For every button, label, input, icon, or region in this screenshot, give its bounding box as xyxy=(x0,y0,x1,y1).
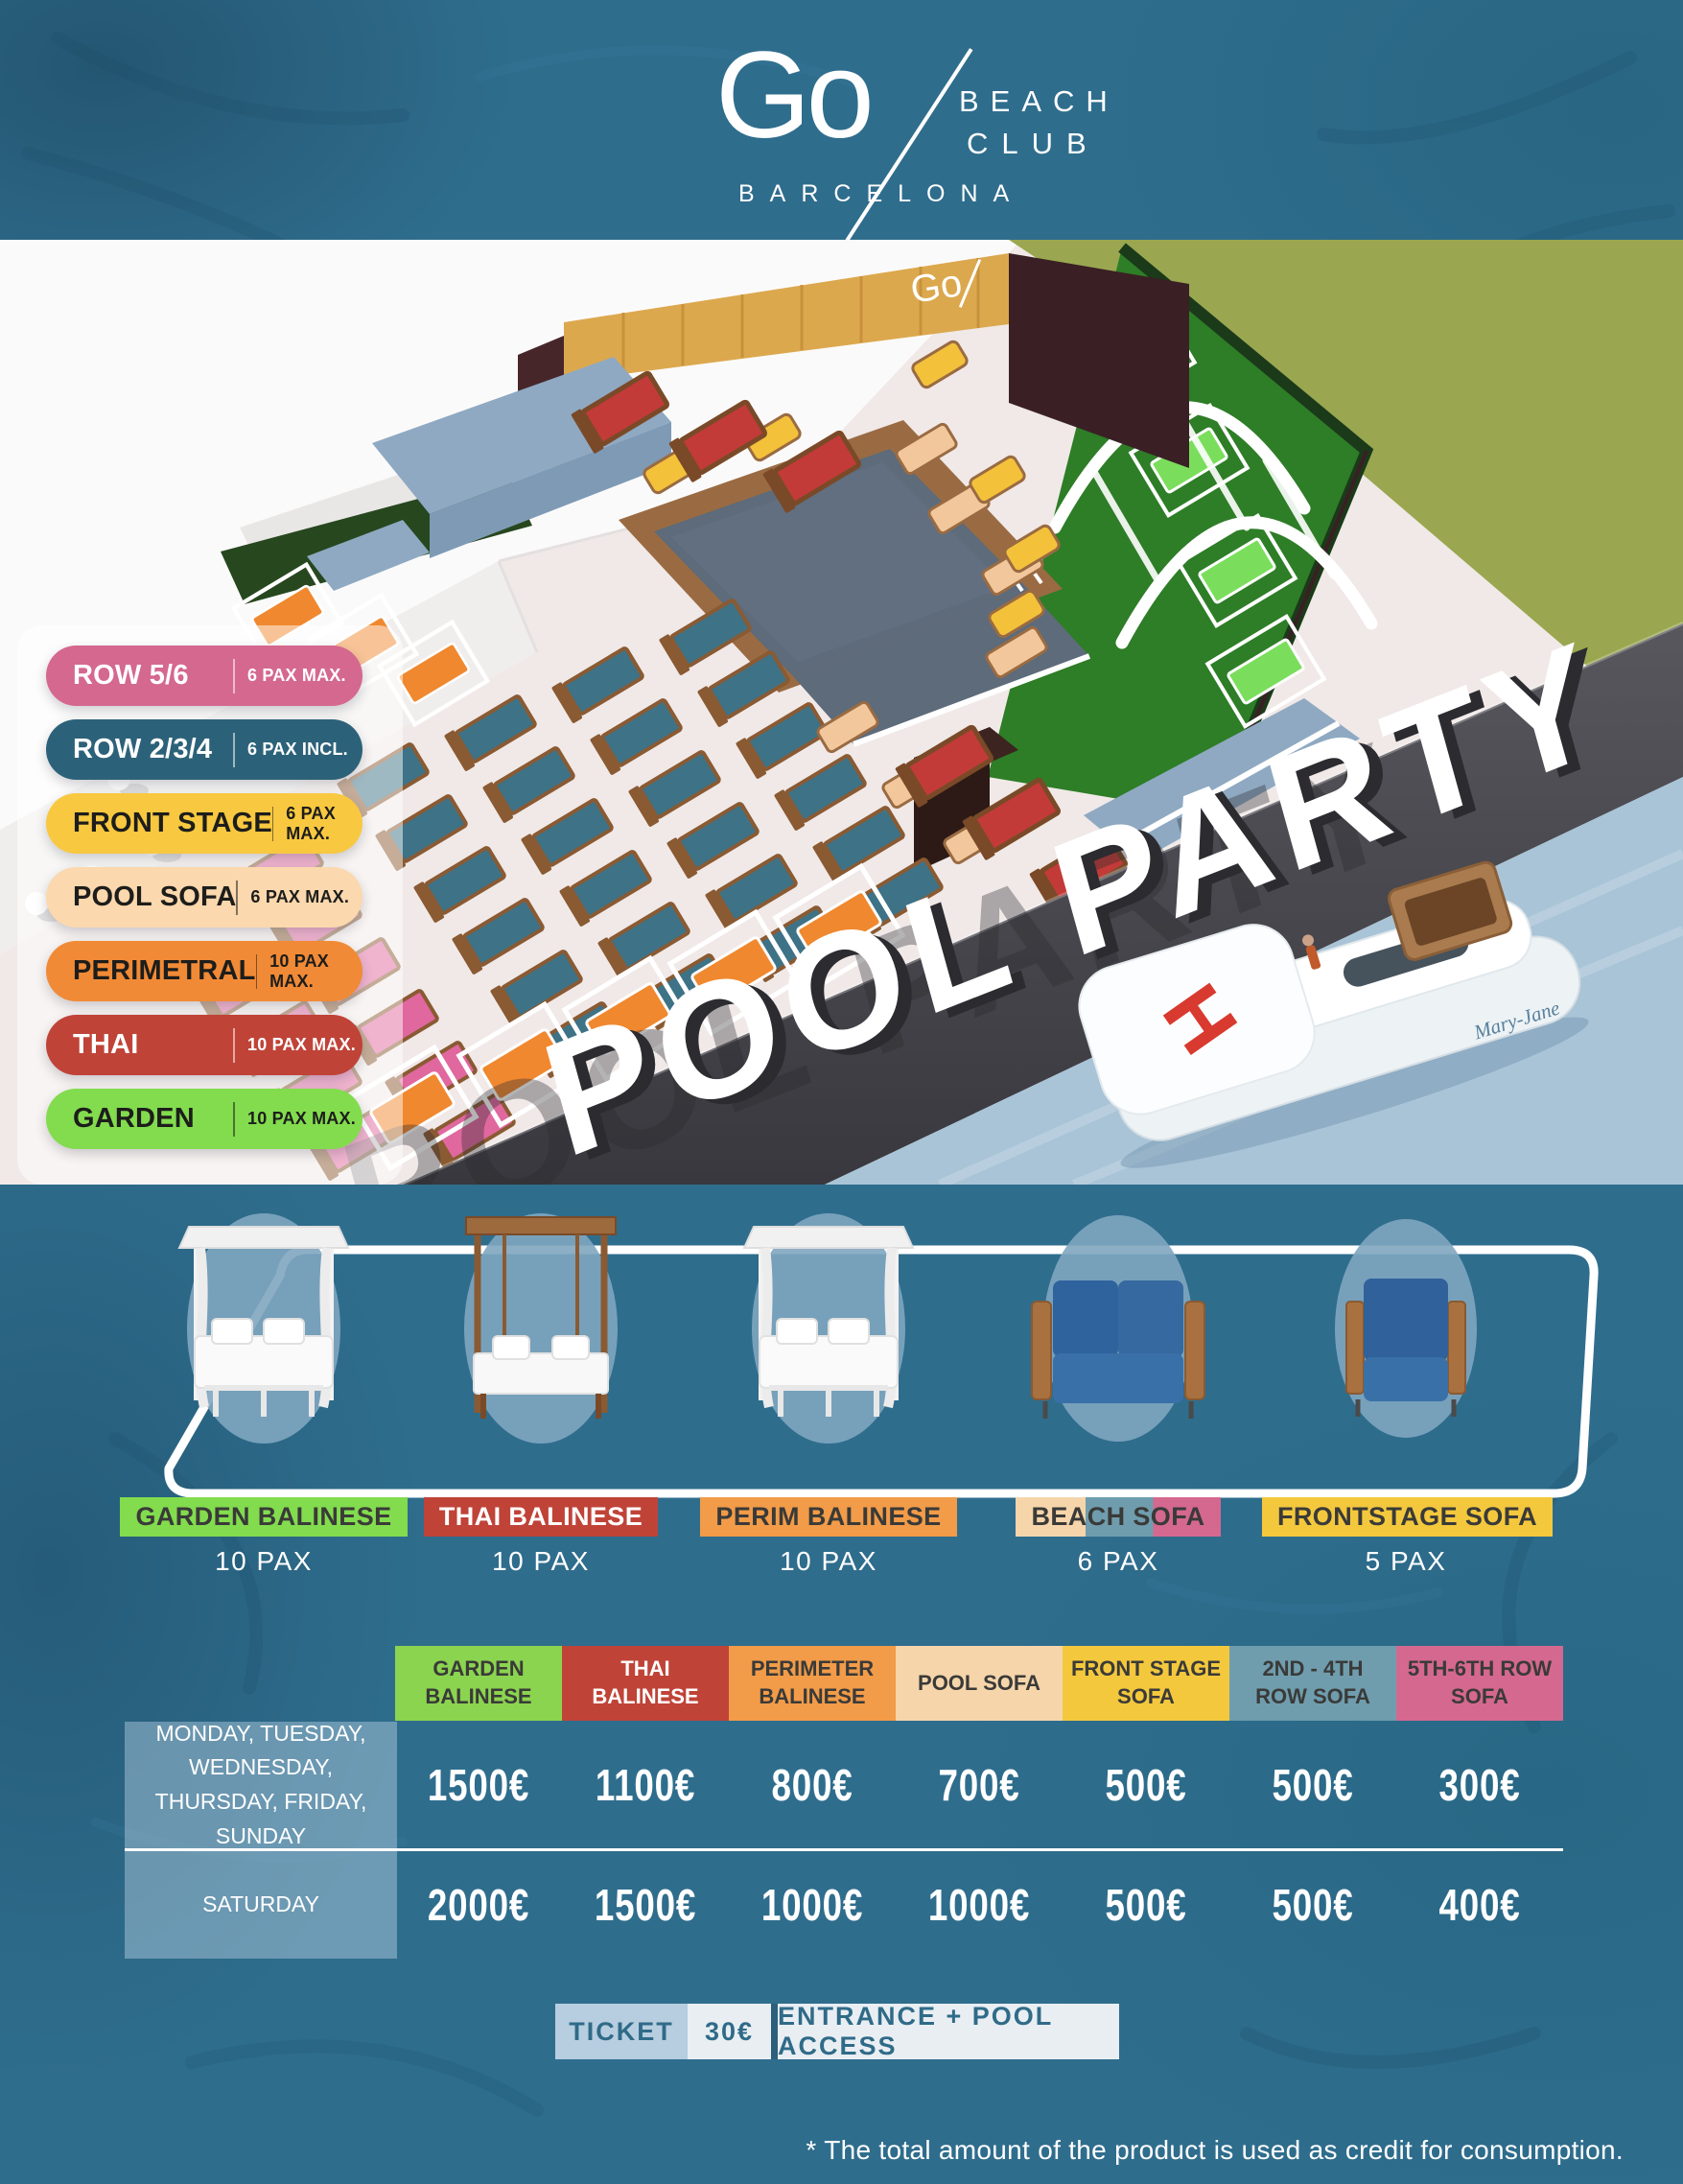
pricing-column-header: FRONT STAGE SOFA xyxy=(1063,1646,1229,1721)
weekday-row-label: MONDAY, TUESDAY, WEDNESDAY, THURSDAY, FR… xyxy=(125,1722,397,1848)
furniture-item-frontstage-sofa: FRONTSTAGE SOFA 5 PAX xyxy=(1262,1185,1550,1577)
legend-garden: GARDEN 10 PAX MAX. xyxy=(46,1089,362,1149)
saturday-price-row: 2000€ 1500€ 1000€ 1000€ 500€ 500€ 400€ xyxy=(395,1876,1563,1934)
logo-barcelona: BARCELONA xyxy=(738,180,1024,208)
furniture-name-chip: BEACH SOFA xyxy=(1016,1497,1220,1537)
price-cell: 2000€ xyxy=(411,1879,545,1931)
legend-label: PERIMETRAL xyxy=(46,955,256,987)
legend-row-5-6: ROW 5/6 6 PAX MAX. xyxy=(46,646,362,706)
thai-balinese-image xyxy=(397,1185,685,1472)
legend-thai: THAI 10 PAX MAX. xyxy=(46,1015,362,1075)
pricing-column-header: 5TH-6TH ROW SOFA xyxy=(1396,1646,1563,1721)
logo-beach: BEACH xyxy=(959,84,1119,119)
weekday-price-row: 1500€ 1100€ 800€ 700€ 500€ 500€ 300€ xyxy=(395,1756,1563,1814)
furniture-pax: 6 PAX xyxy=(974,1546,1262,1577)
legend-divider xyxy=(272,807,273,841)
furniture-name-chip: PERIM BALINESE xyxy=(700,1497,956,1537)
furniture-showcase: GARDEN BALINESE 10 PAX THAI BALINESE 10 … xyxy=(0,1185,1683,1631)
saturday-row-label: SATURDAY xyxy=(125,1851,397,1959)
ticket-bar: TICKET 30€ ENTRANCE + POOL ACCESS xyxy=(555,2004,1119,2059)
legend-pax: 10 PAX MAX. xyxy=(235,1109,362,1129)
price-cell: 500€ xyxy=(1079,1759,1212,1811)
legend-pax: 10 PAX MAX. xyxy=(257,951,362,992)
furniture-pax: 10 PAX xyxy=(685,1546,972,1577)
ticket-price: 30€ xyxy=(688,2004,771,2059)
legend-pax: 10 PAX MAX. xyxy=(235,1035,362,1055)
furniture-name-chip: FRONTSTAGE SOFA xyxy=(1262,1497,1553,1537)
furniture-pax: 10 PAX xyxy=(120,1546,408,1577)
legend-pax: 6 PAX INCL. xyxy=(235,740,362,760)
furniture-name-chip: GARDEN BALINESE xyxy=(120,1497,407,1537)
ticket-description: ENTRANCE + POOL ACCESS xyxy=(778,2004,1119,2059)
legend-divider xyxy=(233,733,235,767)
legend-divider xyxy=(256,954,258,989)
furniture-item-garden-balinese: GARDEN BALINESE 10 PAX xyxy=(120,1185,408,1577)
garden-balinese-image xyxy=(120,1185,408,1472)
furniture-item-perim-balinese: PERIM BALINESE 10 PAX xyxy=(685,1185,972,1577)
perim-balinese-image xyxy=(685,1185,972,1472)
furniture-pax: 10 PAX xyxy=(397,1546,685,1577)
legend-divider xyxy=(233,1028,235,1063)
price-cell: 700€ xyxy=(912,1759,1045,1811)
legend-pax: 6 PAX MAX. xyxy=(273,804,362,844)
logo-club: CLUB xyxy=(967,127,1100,161)
legend-label: THAI xyxy=(46,1029,233,1061)
legend-divider xyxy=(233,659,235,693)
price-cell: 300€ xyxy=(1413,1759,1546,1811)
pricing-column-header: THAI BALINESE xyxy=(562,1646,729,1721)
pricing-column-header: POOL SOFA xyxy=(896,1646,1063,1721)
price-cell: 800€ xyxy=(745,1759,878,1811)
ticket-label: TICKET xyxy=(555,2004,688,2059)
price-cell: 1000€ xyxy=(745,1879,878,1931)
pricing-column-header: 2ND - 4TH ROW SOFA xyxy=(1229,1646,1396,1721)
price-cell: 500€ xyxy=(1079,1879,1212,1931)
pricing-header-row: GARDEN BALINESE THAI BALINESE PERIMETER … xyxy=(395,1646,1563,1721)
price-cell: 500€ xyxy=(1246,1879,1379,1931)
legend-label: FRONT STAGE xyxy=(46,808,272,839)
price-cell: 500€ xyxy=(1246,1759,1379,1811)
furniture-pax: 5 PAX xyxy=(1262,1546,1550,1577)
pool-party-flyer: Go BEACH CLUB BARCELONA EVERY DAY 17:30 … xyxy=(0,0,1683,2184)
price-cell: 400€ xyxy=(1413,1879,1546,1931)
legend-label: POOL SOFA xyxy=(46,881,236,913)
legend-label: ROW 2/3/4 xyxy=(46,734,233,765)
legend-perimetral: PERIMETRAL 10 PAX MAX. xyxy=(46,941,362,1001)
legend-label: ROW 5/6 xyxy=(46,660,233,692)
price-cell: 1500€ xyxy=(411,1759,545,1811)
logo-go-wordmark: Go xyxy=(715,25,870,166)
pricing-column-header: GARDEN BALINESE xyxy=(395,1646,562,1721)
price-cell: 1100€ xyxy=(578,1759,712,1811)
ticket-divider xyxy=(771,2004,778,2059)
furniture-item-thai-balinese: THAI BALINESE 10 PAX xyxy=(397,1185,685,1577)
furniture-item-beach-sofa: BEACH SOFA 6 PAX xyxy=(974,1185,1262,1577)
beach-sofa-image xyxy=(974,1185,1262,1472)
consumption-footnote: * The total amount of the product is use… xyxy=(806,2135,1624,2166)
pricing-column-header: PERIMETER BALINESE xyxy=(729,1646,896,1721)
legend-pax: 6 PAX MAX. xyxy=(235,666,362,686)
legend-row-2-3-4: ROW 2/3/4 6 PAX INCL. xyxy=(46,719,362,780)
legend-front-stage: FRONT STAGE 6 PAX MAX. xyxy=(46,793,362,854)
svg-text:Go: Go xyxy=(908,262,966,312)
legend-divider xyxy=(233,1102,235,1137)
price-cell: 1000€ xyxy=(912,1879,1045,1931)
furniture-name-chip: THAI BALINESE xyxy=(424,1497,658,1537)
legend-divider xyxy=(236,881,238,915)
legend-pax: 6 PAX MAX. xyxy=(238,887,362,907)
legend-label: GARDEN xyxy=(46,1103,233,1135)
legend-pool-sofa: POOL SOFA 6 PAX MAX. xyxy=(46,867,362,928)
venue-map: Go xyxy=(0,240,1683,1185)
frontstage-sofa-image xyxy=(1262,1185,1550,1472)
price-cell: 1500€ xyxy=(578,1879,712,1931)
